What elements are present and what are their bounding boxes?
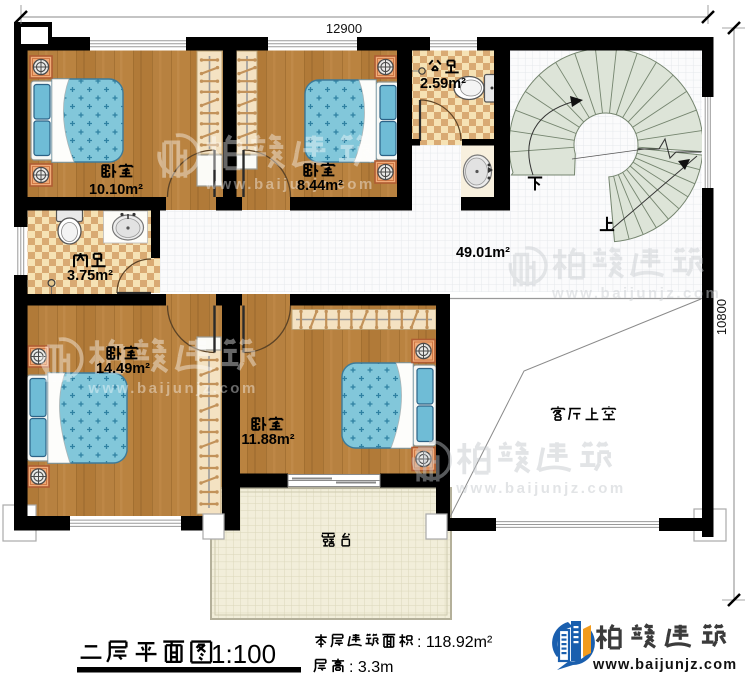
svg-text:14.49m²: 14.49m² [96,361,150,377]
svg-text:49.01m²: 49.01m² [456,245,510,261]
svg-text:10.10m²: 10.10m² [89,182,143,198]
svg-text:1:100: 1:100 [211,639,276,669]
svg-text:3.75m²: 3.75m² [67,268,113,284]
svg-text:www.baijunjz.com: www.baijunjz.com [455,480,625,497]
svg-text:2.59m²: 2.59m² [420,76,466,92]
svg-text:www.baijunjz.com: www.baijunjz.com [551,285,721,302]
svg-text:www.baijunjz.com: www.baijunjz.com [204,176,374,193]
svg-text:10800: 10800 [714,299,729,335]
svg-text:: 118.92m²: : 118.92m² [417,634,493,651]
svg-text:12900: 12900 [326,21,362,36]
svg-text:8.44m²: 8.44m² [297,178,343,194]
svg-text:: 3.3m: : 3.3m [349,659,393,676]
svg-text:www.baijunjz.com: www.baijunjz.com [87,380,257,397]
svg-text:11.88m²: 11.88m² [241,432,294,448]
svg-text:www.baijunjz.com: www.baijunjz.com [592,657,737,673]
